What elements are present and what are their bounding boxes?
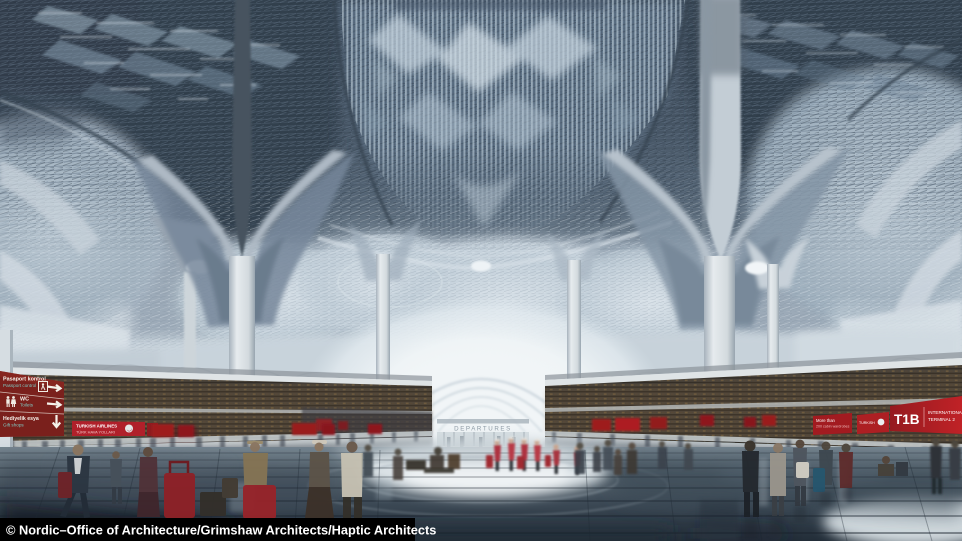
svg-text:T1B: T1B	[894, 412, 920, 427]
svg-text:Hediyelik esya: Hediyelik esya	[3, 416, 39, 422]
svg-text:TURKISH: TURKISH	[859, 421, 875, 425]
svg-text:TERMINAL 2: TERMINAL 2	[928, 417, 955, 422]
svg-text:DEPARTURES: DEPARTURES	[454, 426, 512, 433]
svg-text:More than: More than	[816, 418, 836, 423]
svg-text:Toilets: Toilets	[20, 403, 34, 408]
svg-text:200 cabin wardrobes: 200 cabin wardrobes	[816, 425, 850, 429]
svg-text:TÜRK HAVA YOLLARI: TÜRK HAVA YOLLARI	[76, 430, 115, 435]
svg-text:Passport control: Passport control	[3, 383, 36, 388]
svg-text:© Nordic–Office of Architectur: © Nordic–Office of Architecture/Grimshaw…	[6, 523, 436, 538]
svg-text:TURKISH AIRLINES: TURKISH AIRLINES	[76, 424, 117, 429]
svg-text:INTERNATIONAL: INTERNATIONAL	[928, 410, 962, 415]
svg-text:Gift shops: Gift shops	[3, 423, 24, 428]
